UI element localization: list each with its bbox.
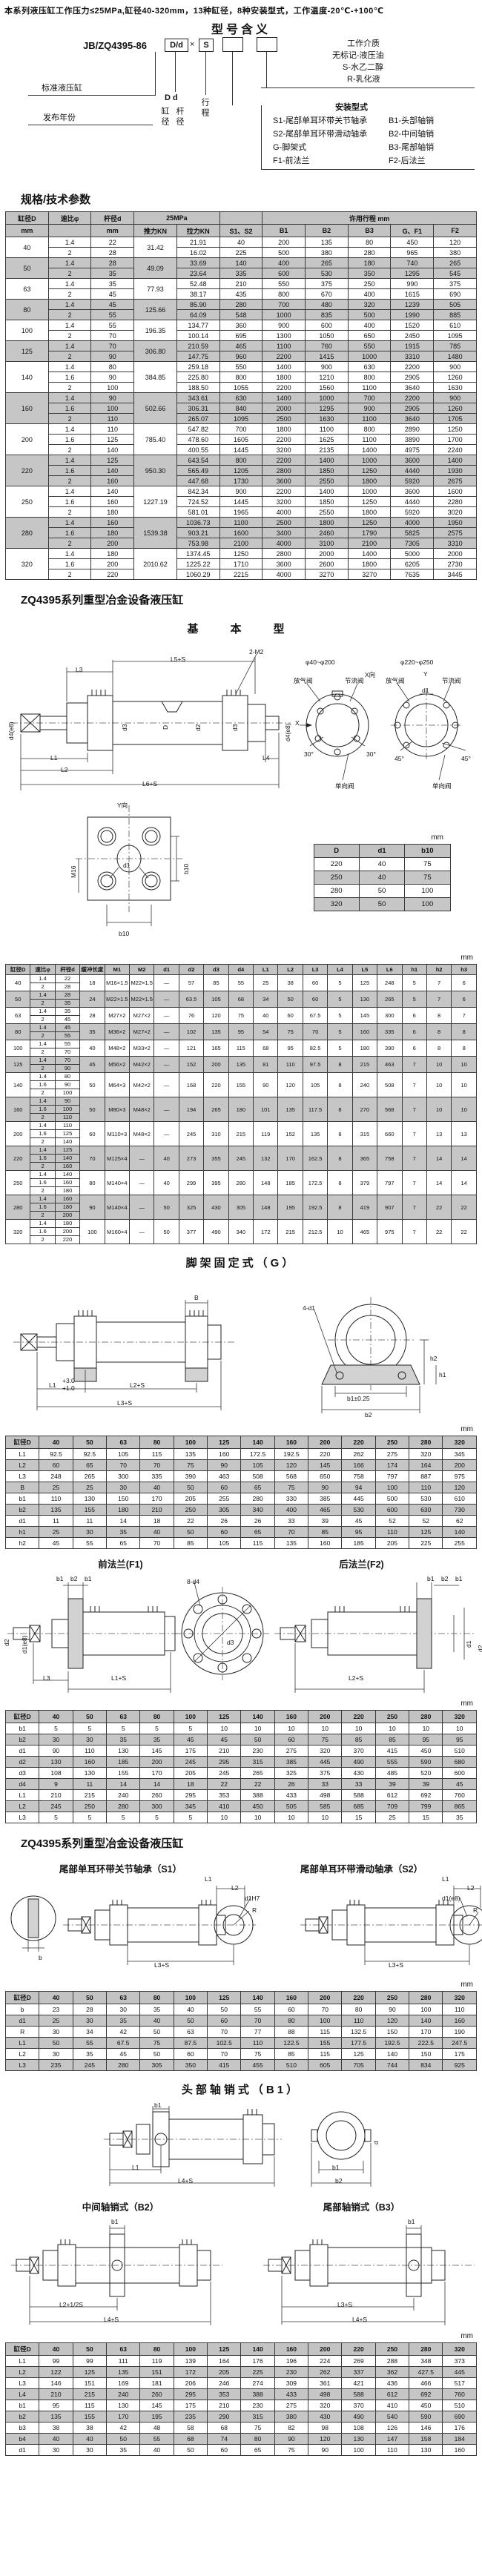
table-cell: 463 <box>208 1471 241 1482</box>
table-cell: 3270 <box>348 569 391 580</box>
medium-title: 工作介质 <box>347 37 380 49</box>
drawing-label: L2 <box>231 1884 238 1892</box>
table-cell: 125 <box>91 435 134 445</box>
table-cell: 6 <box>402 1008 426 1024</box>
table-cell: 900 <box>434 362 477 372</box>
table-cell: 100 <box>342 2445 375 2456</box>
table-cell: 1850 <box>306 466 349 476</box>
table-cell: 1965 <box>219 507 263 518</box>
table-cell: 2 <box>48 569 91 580</box>
drawing-label: L4 <box>263 754 269 762</box>
table-cell: 42 <box>107 2423 140 2434</box>
table-cell: 275 <box>274 2400 308 2411</box>
eye-mount-svg <box>0 1875 482 1979</box>
table-cell: 100 <box>6 320 49 341</box>
table-cell: 147.75 <box>176 351 219 362</box>
table-cell: 709 <box>375 1801 409 1812</box>
table-cell: 63 <box>174 2027 207 2038</box>
table-cell: mm <box>6 225 49 237</box>
table-cell: 1.41.62 <box>30 1122 55 1146</box>
table-cell: 220 <box>308 1449 342 1460</box>
table-cell: L3 <box>6 1812 39 1823</box>
table-cell: 25 <box>73 1482 106 1493</box>
table-cell: 250 <box>6 1171 30 1195</box>
table-cell: 105 <box>241 1460 274 1471</box>
table-cell: 110 <box>278 1057 303 1073</box>
drawing-label: B <box>194 1294 199 1301</box>
drawing-label: b1 <box>332 2164 339 2171</box>
table-cell: 430 <box>308 2411 342 2423</box>
table-cell: 2675 <box>434 476 477 486</box>
drawing-label: Y <box>423 670 428 678</box>
table-cell: 8 <box>328 1146 352 1171</box>
table-cell: 337 <box>342 2367 375 2378</box>
table-cell: 110 <box>409 1482 443 1493</box>
table-cell: 115 <box>140 1449 174 1460</box>
table-cell: B1 <box>263 225 306 237</box>
table-cell: 85 <box>342 1734 375 1746</box>
flange-face-view: mm Dd1b10220407525040752805010032050100 … <box>0 796 482 952</box>
table-cell: 3545 <box>55 1008 79 1024</box>
table-cell: 797 <box>375 1471 409 1482</box>
table-cell: 10 <box>426 1073 451 1097</box>
table-cell: 35 <box>140 1734 174 1746</box>
table-cell: 1205 <box>219 466 263 476</box>
table-cell: — <box>154 991 179 1008</box>
table-cell: 250 <box>314 871 359 885</box>
table-cell: 2890 <box>391 424 434 435</box>
table-cell: M27×2 <box>105 1008 129 1024</box>
table-cell: 210 <box>219 279 263 289</box>
table-cell: 100 <box>80 1220 105 1244</box>
table-cell: 7 <box>426 975 451 991</box>
drawing-label: 45° <box>461 755 471 762</box>
table-cell: 85 <box>274 2049 308 2060</box>
table-cell: 400 <box>263 258 306 268</box>
table-cell: 215 <box>228 1122 253 1146</box>
table-cell: 160 <box>274 1711 308 1723</box>
table-cell: 135 <box>39 1505 73 1516</box>
table-cell: 380 <box>434 248 477 258</box>
table-cell: 2905 <box>391 403 434 414</box>
table-cell: 1250 <box>348 466 391 476</box>
table-cell: L2 <box>278 965 303 975</box>
standard-label: 标准液压缸 <box>42 82 82 93</box>
table-cell: 35 <box>140 2004 174 2015</box>
table-cell: 1.4 <box>48 424 91 435</box>
table-cell: 140 <box>241 1436 274 1449</box>
table-cell: 90100110 <box>55 1097 79 1122</box>
table-cell: 1930 <box>434 466 477 476</box>
table-cell: 135 <box>228 1057 253 1073</box>
pin-titles: 中间轴销式（B2） 尾部轴销式（B3） <box>0 2192 482 2213</box>
table-cell: 280 <box>241 1493 274 1505</box>
table-cell: 100 <box>174 1711 207 1723</box>
table-cell: 270 <box>352 1097 377 1122</box>
table-cell: 80 <box>91 362 134 372</box>
table-cell: 1100 <box>348 414 391 424</box>
table-cell: 30 <box>107 1482 140 1493</box>
table-cell: 22 <box>91 237 134 248</box>
table-cell: 151 <box>140 2367 174 2378</box>
table-cell: 305 <box>208 1505 241 1516</box>
table-cell: 125 <box>6 1057 30 1073</box>
table-cell: 45 <box>91 289 134 300</box>
table-cell: 1615 <box>391 289 434 300</box>
table-cell: 102.5 <box>208 2038 241 2049</box>
drawing-label: b1 <box>455 1575 462 1582</box>
b2-b3-drawing: b1L2+1/2SL4+Sb1L3+SL4+S <box>0 2213 482 2331</box>
table-cell: 130 <box>107 2400 140 2411</box>
table-cell: 22 <box>208 1779 241 1790</box>
table-cell: 230 <box>274 2367 308 2378</box>
table-cell: 45 <box>443 1779 477 1790</box>
table-cell: 730 <box>443 1505 477 1516</box>
table-cell: 13 <box>452 1122 477 1146</box>
table-cell: 160 <box>352 1024 377 1040</box>
table-cell: 101 <box>254 1097 278 1122</box>
table-cell: 110 <box>375 1527 409 1538</box>
table-cell: 150 <box>107 1493 140 1505</box>
table-cell: 15 <box>342 1812 375 1823</box>
table-cell: 300 <box>107 1471 140 1482</box>
drawing-label: L3+S <box>337 2301 352 2308</box>
table-cell: 38.17 <box>176 289 219 300</box>
table-cell: 3200 <box>263 497 306 507</box>
drawing-label: b1 <box>427 1575 434 1582</box>
table-cell: 274 <box>241 2378 274 2389</box>
mount-title: 安装型式 <box>335 101 368 113</box>
table-cell: 660 <box>377 1122 402 1146</box>
drawing-label: d1 <box>422 687 429 694</box>
table-cell: 14 <box>426 1171 451 1195</box>
table-cell: — <box>154 975 179 991</box>
table-cell: 152 <box>278 1122 303 1146</box>
table-cell: 188.50 <box>176 383 219 393</box>
table-cell: 245 <box>179 1122 203 1146</box>
table-cell: 834 <box>409 2060 443 2071</box>
table-cell: 4555 <box>55 1024 79 1040</box>
table-cell: 82 <box>274 2423 308 2434</box>
table-cell: 1800 <box>348 476 391 486</box>
table-cell: 60 <box>208 1527 241 1538</box>
table-cell: 6205 <box>391 559 434 569</box>
table-cell: 220 <box>342 1436 375 1449</box>
table-cell: D <box>314 845 359 858</box>
mount-item: S1-尾部单耳环带关节轴承 <box>273 114 367 126</box>
table-cell: 585 <box>308 1801 342 1812</box>
table-cell: 68 <box>254 1040 278 1057</box>
table-cell: M22×1.5 <box>130 975 154 991</box>
table-cell: — <box>130 1171 154 1195</box>
table-cell: 200 <box>308 1992 342 2004</box>
table-cell: 1400 <box>306 486 349 497</box>
table-cell: 490 <box>342 2411 375 2423</box>
drawing-label: L3 <box>76 666 82 673</box>
drawing-label: φ40~φ200 <box>306 658 335 666</box>
table-cell: 1250 <box>348 497 391 507</box>
table-cell: M1 <box>105 965 129 975</box>
table-cell: 2 <box>48 538 91 549</box>
table-cell: 265 <box>377 991 402 1008</box>
table-cell: 172 <box>254 1220 278 1244</box>
table-cell: 1.6 <box>48 403 91 414</box>
table-cell: — <box>154 1008 179 1024</box>
drawing-label: 单向阀 <box>432 782 452 790</box>
table-cell: 8 <box>452 1040 477 1057</box>
table-cell: 280 <box>6 518 49 549</box>
table-cell: 缸径D <box>6 212 49 225</box>
table-cell: 30 <box>39 2049 73 2060</box>
table-cell: 125140160 <box>55 1146 79 1171</box>
drawing-label: d4(e8) <box>7 721 15 740</box>
table-cell: 150 <box>375 2027 409 2038</box>
table-cell: d1 <box>154 965 179 975</box>
table-cell: 50 <box>140 2049 174 2060</box>
table-cell: 1850 <box>306 497 349 507</box>
table-cell: 100 <box>174 1992 207 2004</box>
table-cell: 2200 <box>263 455 306 466</box>
table-cell: 80 <box>140 1436 174 1449</box>
table-cell: 2280 <box>434 497 477 507</box>
table-cell: 135 <box>107 2367 140 2378</box>
table-cell: B2 <box>306 225 349 237</box>
table-cell: L3 <box>303 965 327 975</box>
table-cell: 2575 <box>434 528 477 538</box>
table-cell: 900 <box>348 403 391 414</box>
table-cell: 160180200 <box>55 1195 79 1220</box>
table-cell: 速比φ <box>30 965 55 975</box>
table-cell: 40 <box>254 1008 278 1024</box>
table-cell: 40 <box>39 2434 73 2445</box>
table-cell: 174 <box>375 1460 409 1471</box>
table-cell: 800 <box>263 289 306 300</box>
table-cell: 500 <box>263 248 306 258</box>
table-cell: 280 <box>409 1711 443 1723</box>
table-cell: 760 <box>443 2389 477 2400</box>
table-cell: 320 <box>409 1449 443 1460</box>
table-cell: 290 <box>208 2411 241 2423</box>
table-cell: 缸径D <box>6 1436 39 1449</box>
table-cell: 865 <box>443 1801 477 1812</box>
table-cell: 5 <box>174 1812 207 1823</box>
table-cell: 85 <box>375 1734 409 1746</box>
table-cell: 99 <box>73 2356 106 2367</box>
table-cell: 2800 <box>263 466 306 476</box>
table-cell: 39 <box>308 1516 342 1527</box>
table-cell: 612 <box>375 1790 409 1801</box>
table-cell: 3640 <box>391 383 434 393</box>
table-cell: 92.5 <box>39 1449 73 1460</box>
table-cell: 5000 <box>391 549 434 559</box>
table-cell: 7 <box>402 1057 426 1073</box>
table-cell: 1800 <box>348 559 391 569</box>
table-cell: 160 <box>91 476 134 486</box>
drawing-label: b1 <box>154 2101 161 2109</box>
table-cell: 1400 <box>434 455 477 466</box>
table-cell: M48×2 <box>130 1122 154 1146</box>
table-cell: 148 <box>254 1171 278 1195</box>
table-cell: 400 <box>274 1505 308 1516</box>
table-cell: 50 <box>39 2038 73 2049</box>
table-cell: 158 <box>409 2434 443 2445</box>
table-cell: 192.5 <box>303 1195 327 1220</box>
table-cell: 90 <box>208 1460 241 1471</box>
table-cell: 255 <box>443 1538 477 1549</box>
table-cell: 10 <box>409 1723 443 1734</box>
basic-type-title: 基 本 型 <box>0 610 482 638</box>
table-cell: 295 <box>174 2389 207 2400</box>
table-cell: 760 <box>306 341 349 351</box>
table-cell: 50 <box>278 991 303 1008</box>
table-cell: 320 <box>6 549 49 580</box>
table-cell: 1.4 <box>48 258 91 268</box>
table-cell: 2 <box>48 248 91 258</box>
table-cell: 60 <box>208 2015 241 2027</box>
table-cell: 384.85 <box>134 362 177 393</box>
table-cell: 8 <box>328 1195 352 1220</box>
table-cell: 25MPa <box>134 212 219 225</box>
table-cell: 140 <box>241 2343 274 2356</box>
table-cell: 10 <box>328 1220 352 1244</box>
table-cell: 45 <box>91 300 134 310</box>
drawing-label: 30° <box>366 750 376 758</box>
table-cell: d1 <box>6 2015 39 2027</box>
table-cell: 35 <box>91 279 134 289</box>
table-cell: 85 <box>174 1538 207 1549</box>
table-cell: 100 <box>91 383 134 393</box>
table-cell: 3600 <box>263 559 306 569</box>
table-cell: 630 <box>409 1505 443 1516</box>
table-cell: 40 <box>39 2343 73 2356</box>
table-cell: 3310 <box>391 351 434 362</box>
table-cell: 缸径D <box>6 1711 39 1723</box>
table-cell: 26 <box>208 1516 241 1527</box>
table-cell: 800 <box>219 372 263 383</box>
table-cell: 8090100 <box>55 1073 79 1097</box>
table-cell: 52 <box>409 1516 443 1527</box>
table-cell: 340 <box>241 1505 274 1516</box>
table-cell: 38 <box>278 975 303 991</box>
table-cell: 630 <box>219 393 263 403</box>
table-cell: 280 <box>6 1195 30 1220</box>
table-cell: 255 <box>208 1493 241 1505</box>
table-cell: 39 <box>409 1779 443 1790</box>
table-cell: 692 <box>409 2389 443 2400</box>
table-cell: 250 <box>73 1801 106 1812</box>
table-cell: 588 <box>342 1790 375 1801</box>
table-cell: 50 <box>73 2343 106 2356</box>
drawing-label: b1 <box>111 2218 118 2225</box>
table-cell: 54 <box>254 1024 278 1040</box>
table-cell: 315 <box>241 2411 274 2423</box>
table-cell: 275 <box>375 1449 409 1460</box>
table-cell: 265 <box>241 1768 274 1779</box>
table-cell: 162.5 <box>303 1146 327 1171</box>
table-cell: 65 <box>241 2445 274 2456</box>
table-cell: 55 <box>91 320 134 331</box>
table-cell: 155 <box>73 2411 106 2423</box>
table-cell: 38 <box>73 2423 106 2434</box>
table-cell: 5920 <box>391 476 434 486</box>
table-cell: 685 <box>342 1801 375 1812</box>
drawing-label: b2 <box>70 1575 77 1582</box>
table-cell: 21.91 <box>176 237 219 248</box>
table-cell: 1.42 <box>30 1057 55 1073</box>
table-cell: 7090 <box>55 1057 79 1073</box>
table-cell: 45 <box>80 1057 105 1073</box>
drawing-label: h2 <box>430 1355 437 1362</box>
table-cell: 145 <box>308 1460 342 1471</box>
drawing-label: 节流阀 <box>345 676 364 685</box>
table-cell: 2000 <box>263 403 306 414</box>
table-cell: L4 <box>328 965 352 975</box>
table-cell: 379 <box>352 1171 377 1195</box>
table-cell: 335 <box>140 1471 174 1482</box>
table-cell: 70 <box>303 1024 327 1040</box>
table-cell: 16.02 <box>176 248 219 258</box>
table-cell: 505 <box>434 300 477 310</box>
table-cell: 55 <box>73 2038 106 2049</box>
table-cell: 130 <box>409 2445 443 2456</box>
table-cell: 2240 <box>434 445 477 455</box>
table-cell: 744 <box>375 2060 409 2071</box>
table-cell: M22×1.5 <box>130 991 154 1008</box>
table-cell: 377 <box>179 1220 203 1244</box>
table-cell: 385 <box>308 1493 342 1505</box>
drawing-label: L4+S <box>178 2177 193 2184</box>
drawing-label: L3+S <box>117 1399 132 1407</box>
table-cell: 122.5 <box>274 2038 308 2049</box>
table-cell: 45 <box>342 1516 375 1527</box>
table-cell: 7305 <box>391 538 434 549</box>
model-title: 型号含义 <box>0 19 482 37</box>
table-cell: 250 <box>375 1711 409 1723</box>
table-cell: 35 <box>80 1024 105 1040</box>
table-cell: 40 <box>6 237 49 258</box>
table-cell: 70 <box>140 1538 174 1549</box>
table-cell: 75 <box>274 2445 308 2456</box>
table-cell: mm <box>91 225 134 237</box>
table-cell: 100 <box>174 2343 207 2356</box>
table-cell: 265 <box>434 258 477 268</box>
table-cell: 175 <box>174 1746 207 1757</box>
table-cell: 325 <box>274 1768 308 1779</box>
table-cell: 97.5 <box>303 1057 327 1073</box>
table-cell: 220 <box>91 569 134 580</box>
table-cell: 250 <box>375 1992 409 2004</box>
table-cell: 246 <box>208 2378 241 2389</box>
table-cell: 375 <box>306 279 349 289</box>
table-cell: 100 <box>308 2015 342 2027</box>
table-cell: 63 <box>107 1436 140 1449</box>
table-cell: 102 <box>179 1024 203 1040</box>
table-cell: 950.30 <box>134 455 177 486</box>
table-cell: 70 <box>208 2027 241 2038</box>
table-cell: 530 <box>306 268 349 279</box>
table-cell: 155 <box>73 1505 106 1516</box>
table-cell: 40 <box>140 1527 174 1538</box>
table-cell: 18 <box>140 1516 174 1527</box>
table-cell: 95 <box>342 1527 375 1538</box>
table-cell: 7 <box>402 1073 426 1097</box>
table-cell: 555 <box>375 1757 409 1768</box>
table-cell: M16×1.5 <box>105 975 129 991</box>
table-cell: 100 <box>91 403 134 414</box>
table-cell: 7 <box>402 1220 426 1244</box>
b1-drawing: b1L1L4+Sb1b2d <box>0 2098 482 2192</box>
table-cell: d4 <box>6 1779 39 1790</box>
